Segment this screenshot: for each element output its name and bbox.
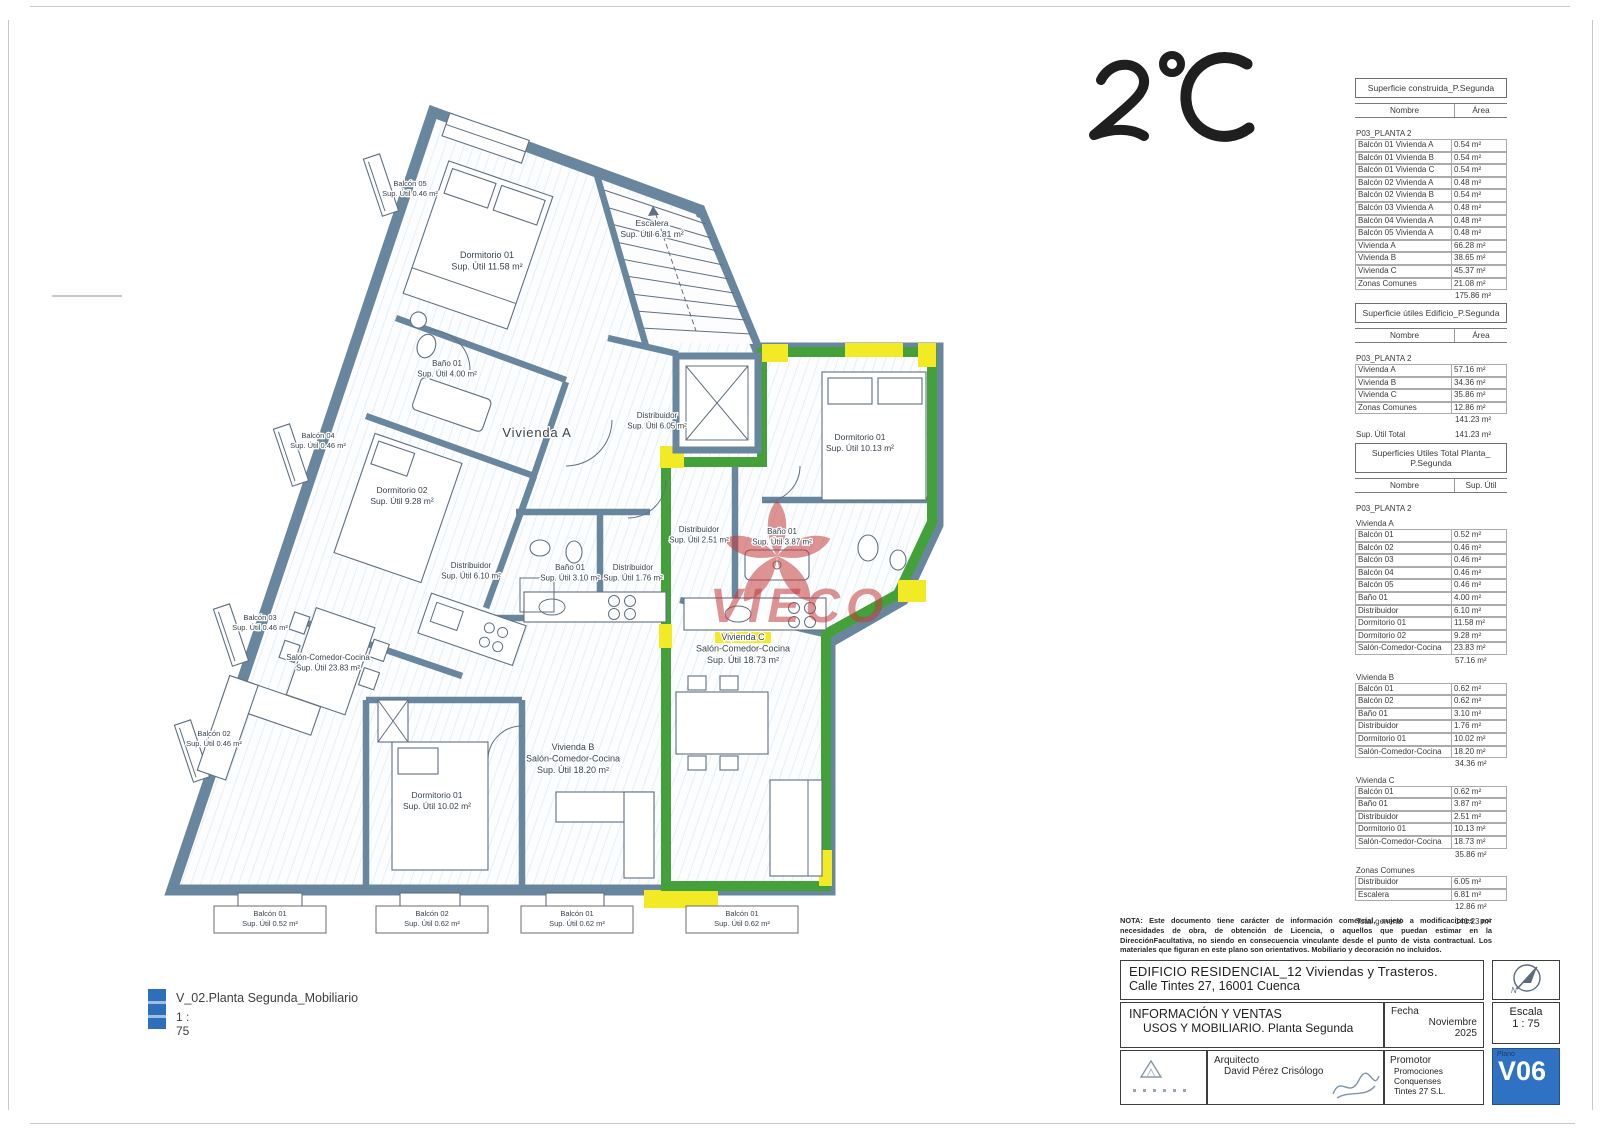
table-title: Superficies Utiles Total Planta_ P.Segun… [1355, 443, 1507, 473]
table-row: Balcón 02 Vivienda A0.48 m² [1355, 177, 1507, 190]
legend-title: V_02.Planta Segunda_Mobiliario [176, 991, 496, 1005]
table-row: Balcón 010.62 m² [1355, 683, 1507, 696]
room-label: Dormitorio 01Sup. Útil 10.13 m² [826, 432, 894, 453]
table-row: Zonas Comunes21.08 m² [1355, 278, 1507, 291]
svg-text:Vivienda A: Vivienda A [502, 425, 571, 440]
table-row: Vivienda B34.36 m² [1355, 377, 1507, 390]
signature [1329, 1072, 1381, 1102]
firm-logo [1121, 1051, 1204, 1102]
table-row: Balcón 01 Vivienda C0.54 m² [1355, 164, 1507, 177]
fecha-box: Fecha Noviembre 2025 [1384, 1002, 1484, 1048]
table-row: Salón-Comedor-Cocina23.83 m² [1355, 642, 1507, 655]
table-row: Balcón 020.62 m² [1355, 695, 1507, 708]
table-row: 34.36 m² [1355, 758, 1507, 771]
table-group: Vivienda A [1355, 514, 1507, 529]
table-row: Distribuidor1.76 m² [1355, 720, 1507, 733]
table-row: 141.23 m² [1355, 414, 1507, 427]
room-label: Dormitorio 01Sup. Útil 10.02 m² [403, 790, 471, 811]
table-row: Baño 013.87 m² [1355, 798, 1507, 811]
project-name: EDIFICIO RESIDENCIAL_12 Viviendas y Tras… [1129, 964, 1475, 979]
svg-text:Dormitorio 01Sup. Útil 10.13 m: Dormitorio 01Sup. Útil 10.13 m² [826, 432, 894, 453]
escala-label: Escala [1493, 1006, 1559, 1018]
svg-text:Dormitorio 01Sup. Útil 10.02 m: Dormitorio 01Sup. Útil 10.02 m² [403, 790, 471, 811]
table-title: Superficie construida_P.Segunda [1355, 78, 1507, 98]
table-row: 35.86 m² [1355, 849, 1507, 862]
table-row: Sup. Útil Total141.23 m² [1355, 427, 1507, 439]
room-label: Balcón 01Sup. Útil 0.62 m² [521, 906, 633, 933]
escala-value: 1 : 75 [1493, 1018, 1559, 1030]
table-row: Balcón 01 Vivienda B0.54 m² [1355, 152, 1507, 165]
table-row: Vivienda C45.37 m² [1355, 265, 1507, 278]
room-label: Dormitorio 01Sup. Útil 11.58 m² [451, 250, 522, 271]
table-row: Balcón 050.46 m² [1355, 579, 1507, 592]
table-row: Balcón 03 Vivienda A0.48 m² [1355, 202, 1507, 215]
table-group: Zonas Comunes [1355, 861, 1507, 876]
table-row: Dormitorio 0110.02 m² [1355, 733, 1507, 746]
table-row: Escalera6.81 m² [1355, 889, 1507, 902]
plano-box: Plano V06 [1492, 1048, 1560, 1105]
table-row: Distribuidor6.10 m² [1355, 605, 1507, 618]
legend-scale: 1 : 75 [176, 1010, 189, 1038]
firm-logo-box [1120, 1050, 1207, 1105]
table-group: P03_PLANTA 2 [1355, 499, 1507, 514]
table-row: Vivienda A57.16 m² [1355, 364, 1507, 377]
document-title-box: INFORMACIÓN Y VENTAS USOS Y MOBILIARIO. … [1120, 1002, 1384, 1048]
table-superficies-utiles-planta: Superficies Utiles Total Planta_ P.Segun… [1355, 443, 1507, 926]
sofa-c [770, 780, 822, 876]
table-group: P03_PLANTA 2 [1355, 124, 1507, 139]
table-header: NombreSup. Útil [1355, 478, 1507, 493]
legend-color-swatch [148, 989, 166, 1029]
table-row: Baño 013.10 m² [1355, 708, 1507, 721]
table-row: Balcón 010.52 m² [1355, 529, 1507, 542]
escala-box: Escala 1 : 75 [1492, 1002, 1560, 1044]
promotor-label: Promotor [1390, 1055, 1478, 1066]
table-group: Vivienda C [1355, 771, 1507, 786]
north-arrow-icon: N [1493, 961, 1557, 997]
fecha-year: 2025 [1391, 1028, 1477, 1039]
table-row: 57.16 m² [1355, 655, 1507, 668]
elevator [676, 356, 758, 450]
document-subtitle: USOS Y MOBILIARIO. Planta Segunda [1129, 1021, 1383, 1035]
table-row: Zonas Comunes12.86 m² [1355, 402, 1507, 415]
table-row: Dormitorio 0110.13 m² [1355, 823, 1507, 836]
kitchen-b [524, 592, 666, 622]
table-header: NombreÁrea [1355, 103, 1507, 118]
svg-text:N: N [1511, 986, 1517, 995]
project-address: Calle Tintes 27, 16001 Cuenca [1129, 979, 1475, 993]
promotor-box: Promotor Promociones Conquenses Tintes 2… [1384, 1050, 1484, 1105]
table-title: Superficie útiles Edificio_P.Segunda [1355, 303, 1507, 323]
table-row: Balcón 030.46 m² [1355, 554, 1507, 567]
drawing-sheet: VIECO Balcón 05Sup. Útil 0.46 m²Dormitor… [0, 0, 1600, 1131]
room-label: Vivienda A [502, 425, 571, 440]
table-row: Distribuidor6.05 m² [1355, 876, 1507, 889]
room-label: Dormitorio 02Sup. Útil 9.28 m² [370, 485, 433, 506]
table-row: Balcón 01 Vivienda A0.54 m² [1355, 139, 1507, 152]
table-row: Salón-Comedor-Cocina18.73 m² [1355, 836, 1507, 849]
table-row: Balcón 010.62 m² [1355, 786, 1507, 799]
table-row: Balcón 040.46 m² [1355, 567, 1507, 580]
table-row: Vivienda A66.28 m² [1355, 240, 1507, 253]
table-row: Balcón 04 Vivienda A0.48 m² [1355, 215, 1507, 228]
table-header: NombreÁrea [1355, 328, 1507, 343]
table-row: Salón-Comedor-Cocina18.20 m² [1355, 746, 1507, 759]
table-row: Dormitorio 0111.58 m² [1355, 617, 1507, 630]
arquitecto-box: Arquitecto David Pérez Crisólogo [1207, 1050, 1384, 1105]
table-row: Vivienda B38.65 m² [1355, 252, 1507, 265]
project-title-box: EDIFICIO RESIDENCIAL_12 Viviendas y Tras… [1120, 960, 1484, 1000]
svg-text:Dormitorio 01Sup. Útil 11.58 m: Dormitorio 01Sup. Útil 11.58 m² [451, 250, 522, 271]
table-row: 175.86 m² [1355, 290, 1507, 303]
fecha-label: Fecha [1391, 1006, 1477, 1017]
table-group: P03_PLANTA 2 [1355, 349, 1507, 364]
north-arrow-box: N [1492, 960, 1560, 1000]
room-label: Salón-Comedor-CocinaSup. Útil 23.83 m² [286, 653, 370, 672]
table-row: Baño 014.00 m² [1355, 592, 1507, 605]
table-row: Dormitorio 029.28 m² [1355, 630, 1507, 643]
svg-text:Dormitorio 02Sup. Útil 9.28 m²: Dormitorio 02Sup. Útil 9.28 m² [370, 485, 433, 506]
room-label: Balcón 02Sup. Útil 0.62 m² [376, 906, 488, 933]
table-row: Balcón 02 Vivienda B0.54 m² [1355, 189, 1507, 202]
promotor-name: Promociones Conquenses [1390, 1066, 1478, 1086]
legal-note: NOTA: Este documento tiene carácter de i… [1120, 916, 1492, 955]
plano-number: V06 [1493, 1058, 1559, 1084]
promotor-name2: Tintes 27 S.L. [1390, 1086, 1478, 1096]
shaft [378, 700, 408, 742]
table-row: Balcón 020.46 m² [1355, 542, 1507, 555]
table-superficie-util-edificio: Superficie útiles Edificio_P.SegundaNomb… [1355, 303, 1507, 439]
document-title: INFORMACIÓN Y VENTAS [1129, 1007, 1383, 1021]
table-row: Vivienda C35.86 m² [1355, 389, 1507, 402]
arquitecto-label: Arquitecto [1214, 1055, 1377, 1066]
table-superficie-construida: Superficie construida_P.SegundaNombreÁre… [1355, 78, 1507, 315]
table-row: Distribuidor2.51 m² [1355, 811, 1507, 824]
table-group: Vivienda B [1355, 668, 1507, 683]
handwritten-unit-mark: 2°C [1094, 55, 1249, 136]
room-label: Balcón 01Sup. Útil 0.52 m² [214, 906, 326, 933]
room-label: Balcón 01Sup. Útil 0.62 m² [686, 906, 798, 933]
table-row: 12.86 m² [1355, 901, 1507, 914]
svg-text:Salón-Comedor-CocinaSup. Útil: Salón-Comedor-CocinaSup. Útil 23.83 m² [286, 653, 370, 672]
watermark-text: VIECO [710, 580, 889, 633]
fecha-month: Noviembre [1391, 1017, 1477, 1028]
table-row: Balcón 05 Vivienda A0.48 m² [1355, 227, 1507, 240]
